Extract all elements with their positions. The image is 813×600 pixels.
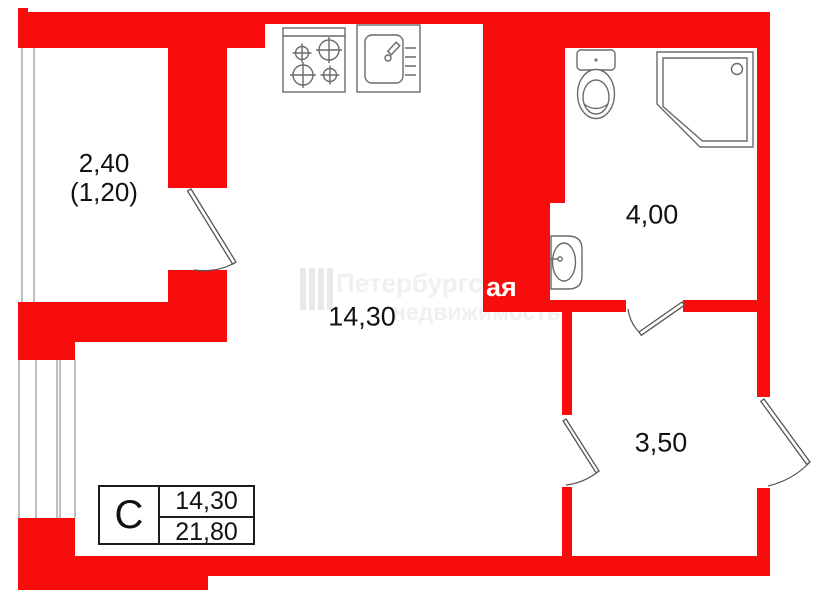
hallway-door — [563, 419, 599, 485]
entrance-door — [761, 399, 810, 486]
apartment-type-cell: С — [100, 487, 160, 543]
balcony-window — [22, 48, 34, 302]
room-label-living-kitchen: 14,30 — [328, 303, 396, 332]
room-label-bathroom: 4,00 — [626, 201, 679, 230]
room-label-balcony: 2,40 (1,20) — [70, 149, 138, 207]
total-area-cell: 21,80 — [160, 518, 253, 547]
bay-window — [19, 360, 75, 518]
balcony-area-value: 2,40 — [70, 149, 138, 178]
floor-plan-canvas: Петербургская недвижимость — [0, 0, 813, 600]
watermark-wall-fragment: ая — [486, 272, 517, 303]
summary-table: С 14,30 21,80 — [98, 485, 255, 545]
balcony-door — [188, 189, 236, 271]
shower-icon — [657, 52, 753, 147]
washbasin-icon — [550, 236, 582, 289]
bathroom-door — [628, 302, 684, 335]
living-area-cell: 14,30 — [160, 487, 253, 518]
room-label-hallway: 3,50 — [635, 429, 688, 458]
stove-icon — [283, 28, 345, 92]
toilet-icon — [577, 50, 615, 119]
kitchen-sink-icon — [357, 25, 420, 92]
balcony-secondary-value: (1,20) — [70, 178, 138, 207]
